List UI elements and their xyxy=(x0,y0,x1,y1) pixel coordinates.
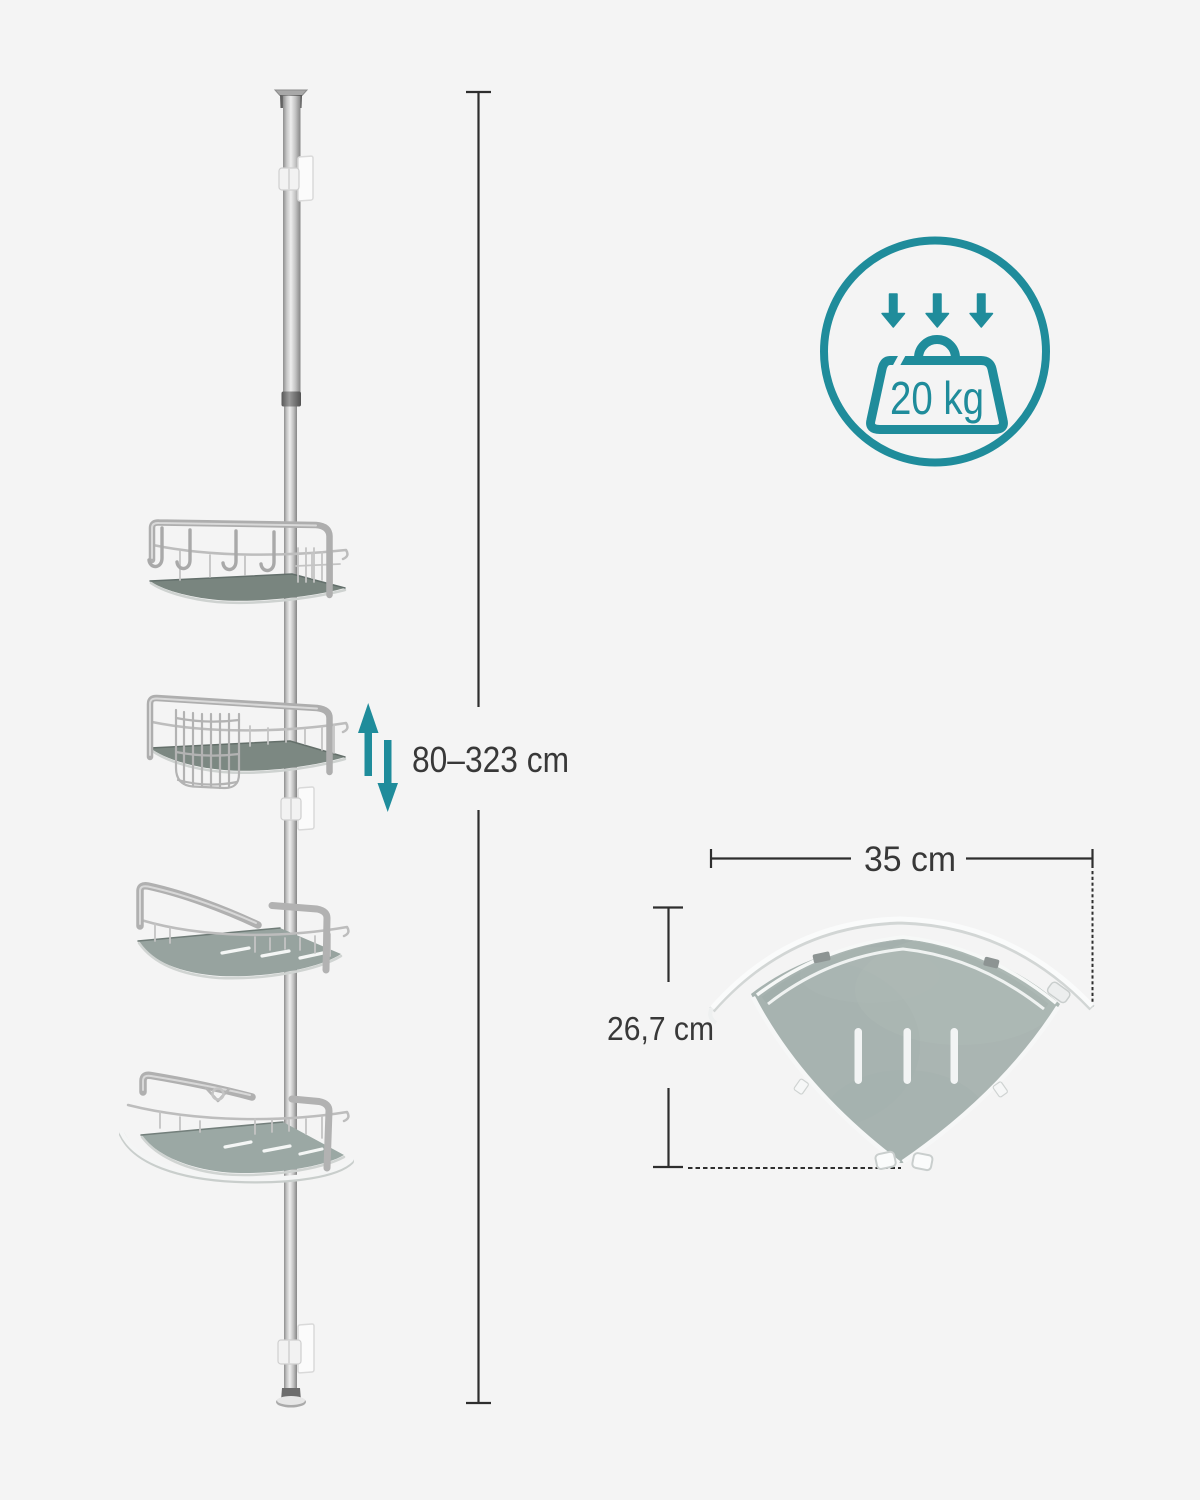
svg-text:80–323 cm: 80–323 cm xyxy=(412,739,569,780)
svg-text:35 cm: 35 cm xyxy=(864,840,956,879)
svg-text:20 kg: 20 kg xyxy=(890,372,984,424)
svg-text:26,7 cm: 26,7 cm xyxy=(607,1010,714,1047)
